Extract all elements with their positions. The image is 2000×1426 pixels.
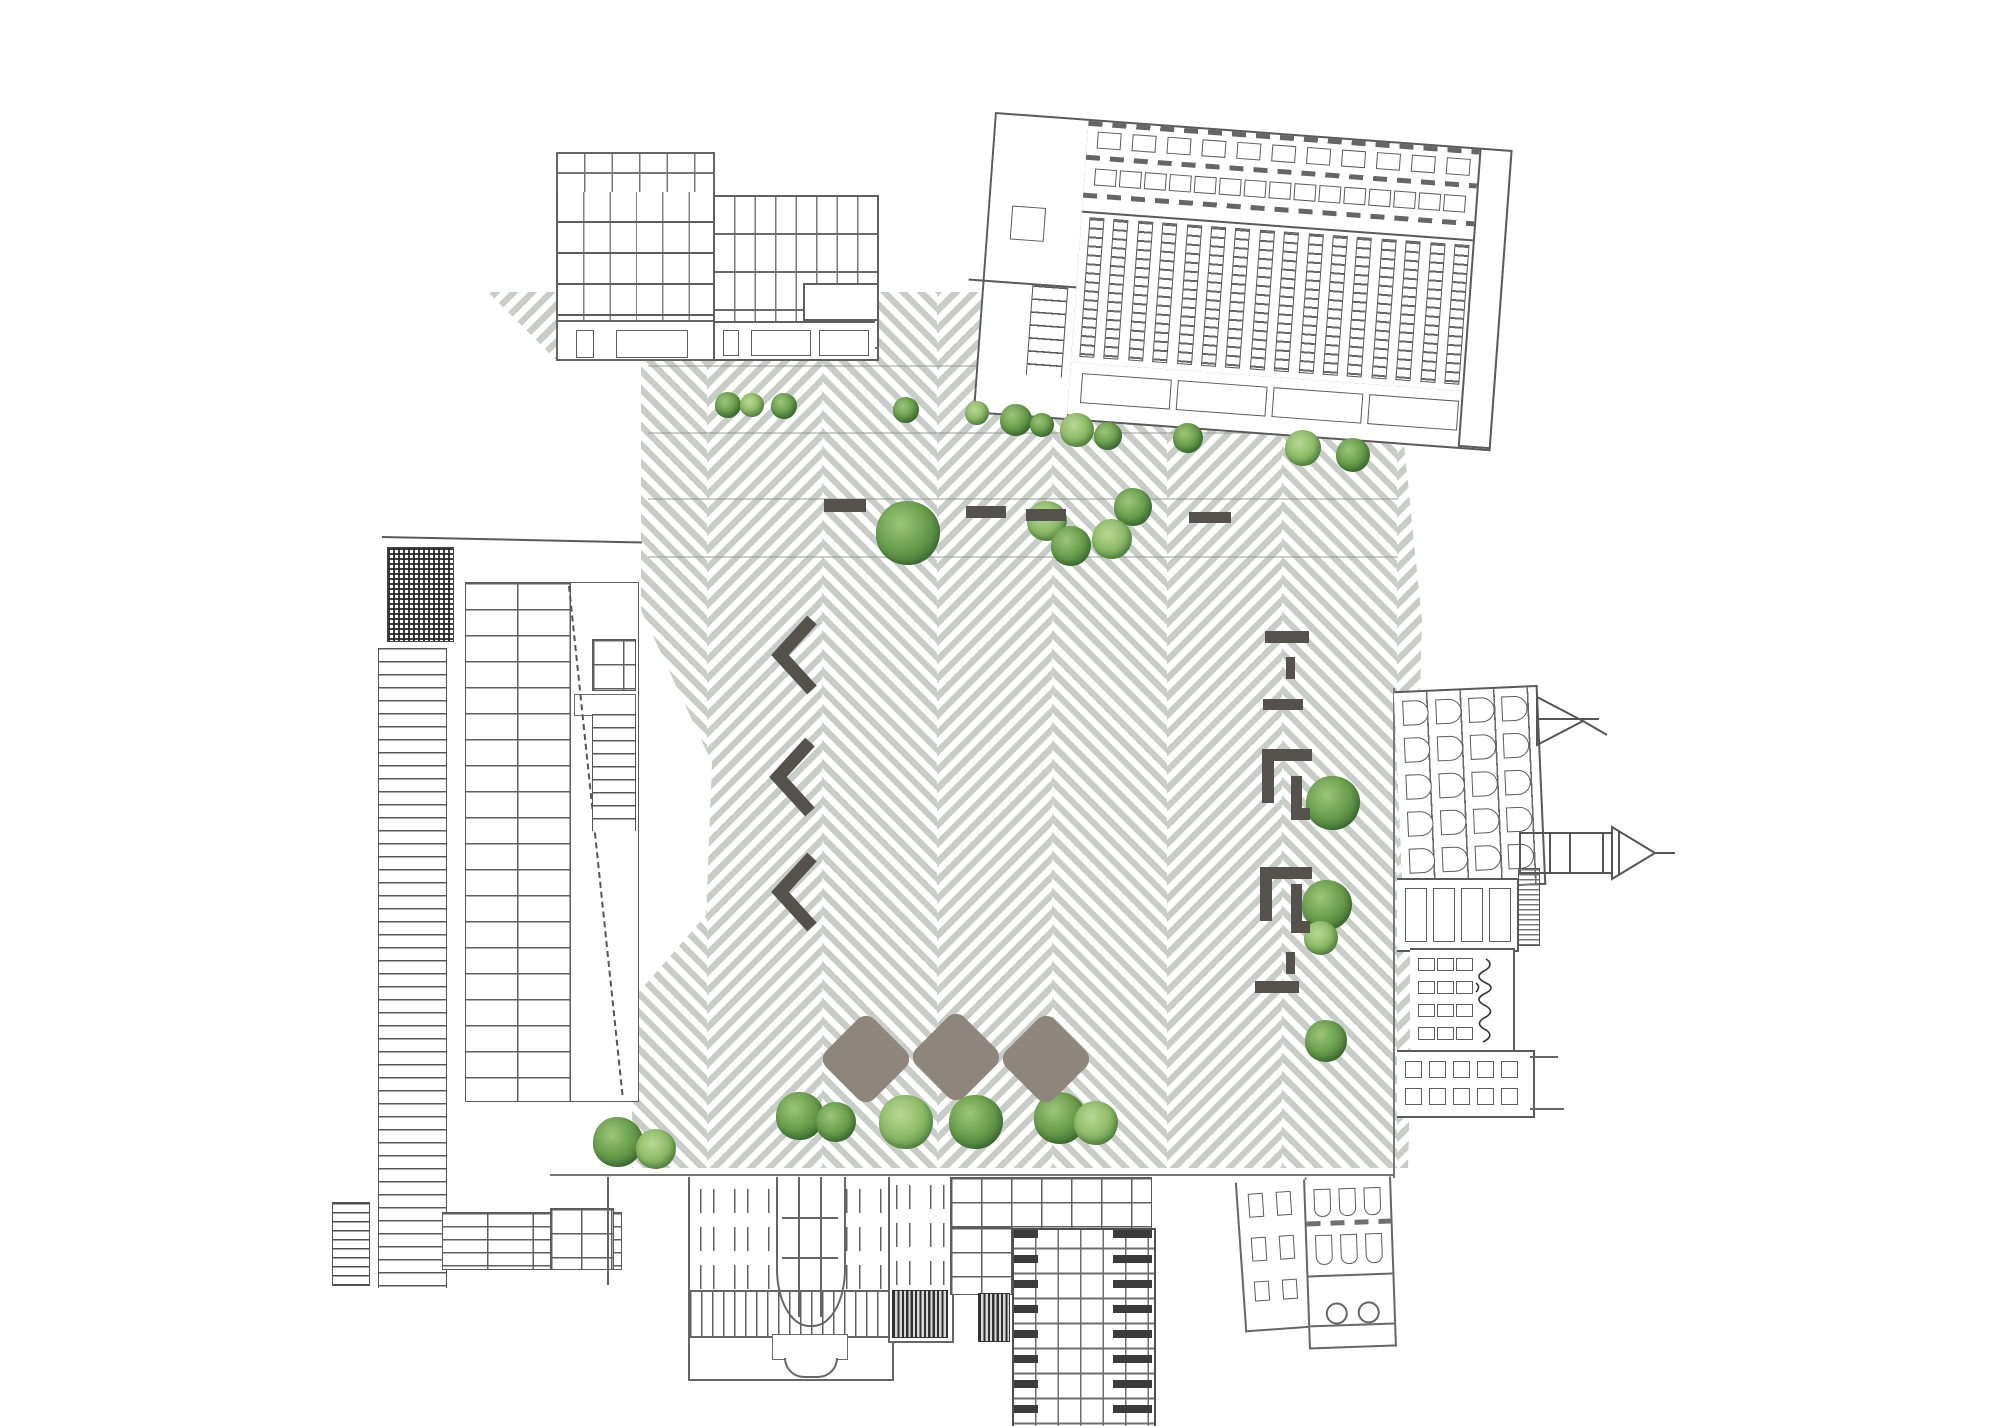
townhouse-arched-window <box>1315 1235 1333 1266</box>
east-small-square-window <box>1418 1004 1435 1017</box>
ne-strip-window <box>1396 240 1421 381</box>
west-slab-rows <box>466 583 571 1101</box>
ne-main-band <box>1071 211 1473 393</box>
classical-porch <box>772 1334 848 1360</box>
tree <box>1173 423 1203 453</box>
east-arched-window <box>1407 811 1434 837</box>
tower-low-band <box>950 1177 1152 1229</box>
bench-bracket-bar <box>1291 921 1310 933</box>
ne-strip-window <box>1128 221 1153 362</box>
paving-seam <box>648 498 1398 500</box>
south-facade-c <box>888 1177 954 1343</box>
nw-shopfront <box>723 330 739 356</box>
west-side-block <box>592 639 636 691</box>
east-small-square-window <box>1456 958 1473 971</box>
bench-chevron <box>768 614 820 696</box>
townhouse-band <box>1307 1219 1391 1227</box>
ne-attic-window <box>1169 174 1192 193</box>
tree <box>1306 776 1360 830</box>
bench-dash <box>1255 981 1299 993</box>
ne-strip-window <box>1274 232 1299 373</box>
south-grid-tower <box>950 1177 1155 1426</box>
townhouse-window <box>1251 1237 1268 1262</box>
townhouse-arched-window <box>1338 1188 1356 1217</box>
bench-bracket-bar <box>1262 749 1312 761</box>
ne-wall-window <box>1010 206 1046 242</box>
east-small-square-window <box>1456 1027 1473 1040</box>
tree <box>1060 413 1094 447</box>
ne-attic-window <box>1097 132 1122 151</box>
townhouse-arched-window <box>1340 1234 1358 1265</box>
bench-dash-vertical <box>1286 657 1295 679</box>
east-low-window <box>1453 1061 1470 1078</box>
ne-strip-window <box>1177 224 1202 365</box>
tree <box>593 1117 643 1167</box>
east-small-square-window <box>1437 981 1454 994</box>
nw-penthouse <box>556 152 715 196</box>
west-low-block <box>332 1202 370 1286</box>
nw-right-ground <box>715 321 875 359</box>
east-small-square-window <box>1418 958 1435 971</box>
nw-modernist-block <box>556 120 876 358</box>
west-side-rows <box>592 714 636 831</box>
east-small-square-window <box>1456 981 1473 994</box>
ne-station-hall <box>973 112 1513 451</box>
ne-attic-window <box>1318 185 1341 204</box>
ne-strip-window <box>1420 242 1445 383</box>
tree <box>1094 422 1122 450</box>
ne-storefront <box>1271 387 1363 424</box>
bench-bracket-bar <box>1260 867 1312 879</box>
tree <box>1074 1101 1118 1145</box>
east-low-window <box>1453 1088 1470 1105</box>
ne-strip-window <box>1152 223 1177 364</box>
ne-strip-window <box>1347 237 1372 378</box>
bench-dash <box>1265 631 1309 643</box>
west-grid-slab <box>465 582 639 1102</box>
bench-dash <box>1263 699 1303 710</box>
nw-shopfront <box>616 330 688 358</box>
paving-seam <box>648 556 1398 558</box>
east-low-block <box>1397 1050 1535 1118</box>
bench-dash <box>1189 512 1231 523</box>
east-hatched-panel <box>1518 868 1540 946</box>
ne-attic-window <box>1446 157 1471 176</box>
nw-shopfront <box>751 330 811 356</box>
townhouse-window <box>1248 1193 1265 1218</box>
ne-attic-window <box>1443 194 1466 213</box>
bench-bracket-bar <box>1260 879 1272 921</box>
townhouse-window <box>1276 1191 1293 1216</box>
nw-left-ground <box>556 320 715 361</box>
east-low-window <box>1501 1088 1518 1105</box>
bench-bracket-bar <box>1262 761 1274 803</box>
ne-attic-window <box>1094 168 1117 187</box>
bench-chevron <box>766 736 818 818</box>
classical-porch-apse <box>784 1358 838 1378</box>
south-small-block <box>550 1208 614 1270</box>
tree <box>1051 526 1091 566</box>
tree <box>715 392 741 418</box>
tower-main-grid <box>1012 1228 1156 1426</box>
tree <box>965 401 989 425</box>
ne-attic-window <box>1393 190 1416 209</box>
tree <box>1285 430 1321 466</box>
east-small-square-window <box>1418 981 1435 994</box>
ne-attic-window <box>1144 172 1167 191</box>
east-small-square-window <box>1437 958 1454 971</box>
tree <box>771 393 797 419</box>
tree <box>879 1095 933 1149</box>
west-outline-top <box>382 536 642 543</box>
tree <box>876 501 940 565</box>
facade-c-dark-screen <box>892 1290 948 1338</box>
ne-strip-window <box>1201 226 1226 367</box>
ne-storefront <box>1176 380 1268 417</box>
townhouse-cornice <box>1308 1273 1392 1278</box>
east-sign-block <box>1410 948 1515 1052</box>
ne-storefront <box>1367 394 1459 431</box>
east-tallwindow-block <box>1397 878 1519 952</box>
tree <box>1336 438 1370 472</box>
bench-chevron <box>768 851 820 933</box>
ne-wall-louver <box>1026 285 1068 377</box>
tree <box>816 1102 856 1142</box>
classical-colonnade <box>690 1290 888 1338</box>
east-low-window <box>1405 1088 1422 1105</box>
bench-dash <box>824 499 866 512</box>
ne-attic-window <box>1376 152 1401 171</box>
ne-strip-window <box>1250 230 1275 371</box>
south-baseline <box>550 1174 1395 1176</box>
bench-dash <box>966 506 1006 518</box>
ne-attic-window <box>1236 142 1261 161</box>
townhouse-arched-window <box>1363 1187 1381 1216</box>
east-arched-window <box>1405 774 1432 800</box>
east-low-window <box>1429 1061 1446 1078</box>
tree <box>949 1095 1003 1149</box>
ne-attic-window <box>1418 192 1441 211</box>
nw-balcony <box>803 283 879 321</box>
east-low-window <box>1429 1088 1446 1105</box>
east-arched-window <box>1435 698 1462 724</box>
townhouse-window <box>1282 1279 1298 1300</box>
east-arched-window <box>1475 845 1502 871</box>
east-arched-window <box>1409 848 1436 874</box>
ne-strip-window <box>1079 217 1104 358</box>
tree <box>893 397 919 423</box>
east-ground-line <box>1530 1056 1558 1058</box>
east-low-window <box>1405 1061 1422 1078</box>
west-louver-strip <box>378 648 447 1288</box>
classical-windows-right <box>846 1189 886 1289</box>
east-baseline <box>1393 688 1395 1178</box>
arch-sill <box>782 1257 838 1259</box>
ne-attic-window <box>1293 183 1316 202</box>
ne-storefront <box>1080 373 1172 410</box>
ne-strip-window <box>1298 233 1323 374</box>
site-plan-canvas <box>0 0 2000 1426</box>
tree <box>1030 413 1054 437</box>
west-louver-tower <box>330 520 642 1292</box>
east-arched-window <box>1442 846 1469 872</box>
east-tall-window <box>1461 888 1483 942</box>
east-arched-window <box>1470 734 1497 760</box>
townhouse-window <box>1254 1281 1270 1302</box>
tree <box>636 1129 676 1169</box>
nw-shopfront <box>819 330 869 356</box>
ne-attic-window <box>1306 147 1331 166</box>
ne-attic-window <box>1132 134 1157 153</box>
ne-attic-window <box>1119 170 1142 189</box>
townhouse-window <box>1279 1235 1296 1260</box>
tower-dark-column <box>1014 1230 1038 1426</box>
south-small-block-pole <box>607 1177 609 1285</box>
east-low-window <box>1501 1061 1518 1078</box>
east-small-square-window <box>1456 1004 1473 1017</box>
ne-canopy-line <box>969 279 1077 289</box>
townhouse-porthole <box>1325 1302 1348 1325</box>
tower-left-strip <box>950 1227 1012 1295</box>
ne-attic-window <box>1341 150 1366 169</box>
ne-strip-window <box>1225 228 1250 369</box>
east-ground-line <box>1530 1108 1564 1110</box>
ne-strip-window <box>1323 235 1348 376</box>
ne-attic-window <box>1194 176 1217 195</box>
ne-attic-window <box>1243 179 1266 198</box>
east-arched-window <box>1438 772 1465 798</box>
paving-band <box>707 288 822 1172</box>
tree <box>740 393 764 417</box>
east-arched-window <box>1440 809 1467 835</box>
ne-attic-window <box>1368 189 1391 208</box>
facade-c-windows <box>896 1185 946 1285</box>
west-speckle-panel <box>387 547 454 642</box>
east-low-window <box>1477 1088 1494 1105</box>
east-arched-window <box>1404 737 1431 763</box>
nw-penthouse-line <box>558 172 713 174</box>
bench-bracket-bar <box>1291 808 1310 820</box>
tree <box>1092 519 1132 559</box>
ne-strip-window <box>1104 219 1129 360</box>
east-arched-window <box>1437 735 1464 761</box>
east-small-square-window <box>1418 1027 1435 1040</box>
east-tall-window <box>1489 888 1511 942</box>
ne-attic-window <box>1166 137 1191 156</box>
east-roof-and-spire <box>1515 655 1695 895</box>
east-low-window <box>1477 1061 1494 1078</box>
ne-strip-window <box>1371 239 1396 380</box>
east-arched-window <box>1468 697 1495 723</box>
tower-left-screen <box>978 1293 1010 1342</box>
nw-left-body <box>556 192 715 322</box>
bench-dash <box>1026 509 1066 521</box>
east-small-square-window <box>1437 1027 1454 1040</box>
west-side-band <box>574 694 636 716</box>
east-tall-window <box>1433 888 1455 942</box>
ne-attic-window <box>1268 181 1291 200</box>
ne-attic-window <box>1219 178 1242 197</box>
nw-door <box>576 330 594 358</box>
townhouse-arched-window <box>1313 1189 1331 1218</box>
east-arched-window <box>1402 700 1429 726</box>
tree <box>1305 1020 1347 1062</box>
east-arched-window <box>1471 771 1498 797</box>
tower-dark-column <box>1113 1230 1152 1426</box>
bench-dash-vertical <box>1286 952 1295 974</box>
ne-attic-window <box>1201 139 1226 158</box>
east-small-square-window <box>1437 1004 1454 1017</box>
ne-attic-window <box>1343 187 1366 206</box>
east-arched-window <box>1473 808 1500 834</box>
tree <box>1000 404 1032 436</box>
nw-right-body <box>713 195 879 361</box>
ne-attic-window <box>1411 155 1436 174</box>
townhouse-arched-window <box>1365 1233 1383 1264</box>
south-townhouse-b <box>1303 1177 1397 1350</box>
ne-attic-window <box>1271 144 1296 163</box>
townhouse-base <box>1310 1322 1394 1327</box>
south-classical-facade <box>688 1177 894 1381</box>
townhouse-porthole <box>1357 1301 1380 1324</box>
classical-windows-left <box>700 1189 774 1289</box>
arch-sill <box>782 1217 838 1219</box>
east-tall-window <box>1405 888 1427 942</box>
